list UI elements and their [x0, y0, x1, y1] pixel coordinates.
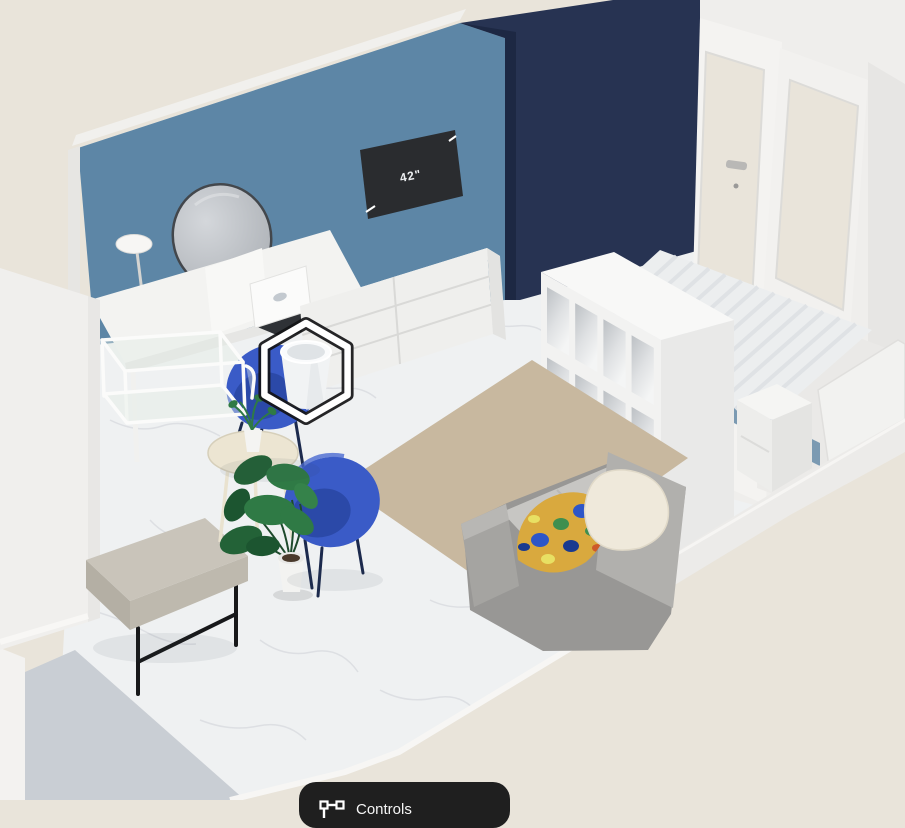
waste-bin[interactable] [281, 341, 331, 410]
room-planner-viewport: { "tv": { "size_label": "42\"" }, "contr… [0, 0, 905, 800]
left-outer-wall-end [0, 648, 25, 800]
controls-button[interactable]: Controls [299, 782, 510, 828]
room-3d-view[interactable]: 42" [0, 0, 905, 800]
controls-button-label: Controls [356, 801, 412, 818]
door-keyhole [734, 184, 739, 189]
left-partition-wall [0, 268, 100, 650]
cream-pillow [585, 470, 669, 550]
walls-tool-icon [319, 800, 345, 818]
